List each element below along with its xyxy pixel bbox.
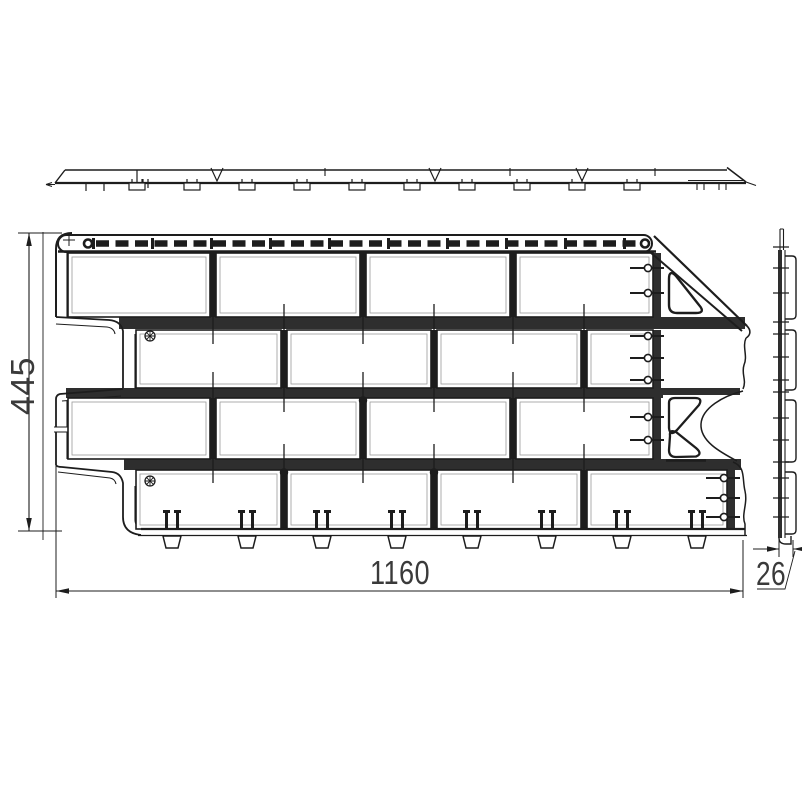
dimension-arrows-thickness [767,546,802,551]
brick [136,470,281,529]
top-view-clips [129,179,640,190]
nail-hem-strip [58,234,652,252]
top-view-left-tip [46,183,55,187]
dimension-height: 445 [4,233,62,531]
top-profile-view [46,168,756,192]
nail-hole-left [84,240,92,248]
brick [437,330,581,388]
mortar-band-2-right [663,388,740,395]
brick [216,253,360,317]
left-edge-notch [54,427,68,432]
lock-hole-lower [669,431,700,457]
brick [216,398,360,459]
brick [68,398,210,459]
top-view-left-chamfer [55,170,65,183]
mortar-band-3 [124,459,741,470]
mortar-band-2 [66,388,663,398]
row3-concave-edge [701,391,743,461]
lock-hole-upper [669,398,700,433]
brick [437,470,581,529]
dimension-label-thickness: 26 [756,555,786,592]
brick [366,253,510,317]
drawing-sheet: 445 1160 26 [0,0,802,802]
brick [287,470,431,529]
brick [68,253,210,317]
screw-mark [145,331,155,341]
brick [136,330,281,388]
nail-hole-right [641,240,649,248]
left-step-3 [56,465,141,535]
screw-mark [145,476,155,486]
panel-technical-drawing: 445 1160 26 [0,0,802,802]
dimension-thickness: 26 [753,540,802,592]
row3-right-edge-band [653,398,661,459]
brick [366,398,510,459]
row2-flange-edge [743,338,746,389]
front-view [43,232,750,548]
left-step-1 [56,317,123,388]
top-view-right-chamfer [727,168,746,183]
row1-right-edge-band [653,253,661,317]
brick [287,330,431,388]
side-profile-view [773,229,796,544]
dimension-label-width: 1160 [370,554,430,591]
dimension-label-height: 445 [4,357,41,415]
